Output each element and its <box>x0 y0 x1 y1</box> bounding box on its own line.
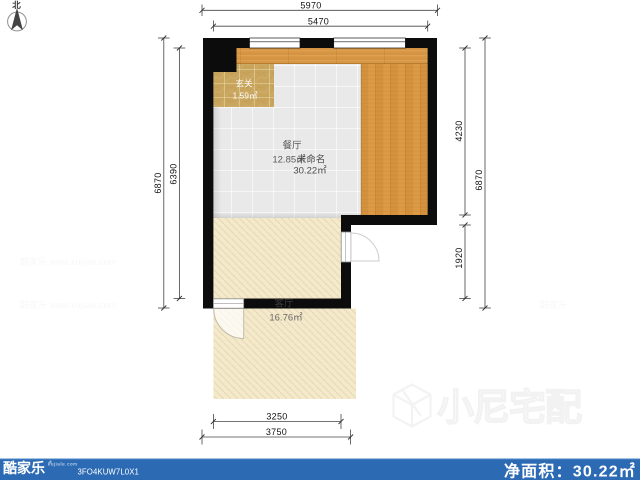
svg-text:净面积：30.22㎡: 净面积：30.22㎡ <box>504 462 636 480</box>
svg-text:餐厅: 餐厅 <box>282 140 302 152</box>
svg-text:30.22㎡: 30.22㎡ <box>293 166 327 177</box>
svg-text:3750: 3750 <box>266 427 287 437</box>
svg-text:kujiale.com: kujiale.com <box>48 462 78 467</box>
svg-text:6870: 6870 <box>474 169 484 190</box>
svg-text:5470: 5470 <box>308 17 329 27</box>
svg-text:6870: 6870 <box>153 172 163 193</box>
svg-text:3FO4KUW7L0X1: 3FO4KUW7L0X1 <box>78 468 139 477</box>
svg-text:酷家乐: 酷家乐 <box>3 460 45 476</box>
svg-text:北: 北 <box>12 0 21 10</box>
svg-text:客厅: 客厅 <box>274 298 294 310</box>
svg-text:玄关: 玄关 <box>235 79 253 89</box>
svg-text:酷家乐 www.kujiale.com: 酷家乐 www.kujiale.com <box>20 256 116 267</box>
svg-text:3250: 3250 <box>266 412 287 422</box>
svg-text:16.76㎡: 16.76㎡ <box>269 313 303 324</box>
svg-text:小尼宅配: 小尼宅配 <box>437 386 582 428</box>
svg-text:1920: 1920 <box>454 247 464 268</box>
svg-text:4230: 4230 <box>454 120 464 141</box>
svg-text:酷家乐 www.kujiale.com: 酷家乐 www.kujiale.com <box>20 299 116 310</box>
svg-text:酷家乐: 酷家乐 <box>540 299 567 310</box>
svg-text:1.59㎡: 1.59㎡ <box>232 91 258 101</box>
svg-text:5970: 5970 <box>300 1 321 11</box>
svg-text:6390: 6390 <box>169 163 179 184</box>
svg-text:未命名: 未命名 <box>297 154 326 166</box>
